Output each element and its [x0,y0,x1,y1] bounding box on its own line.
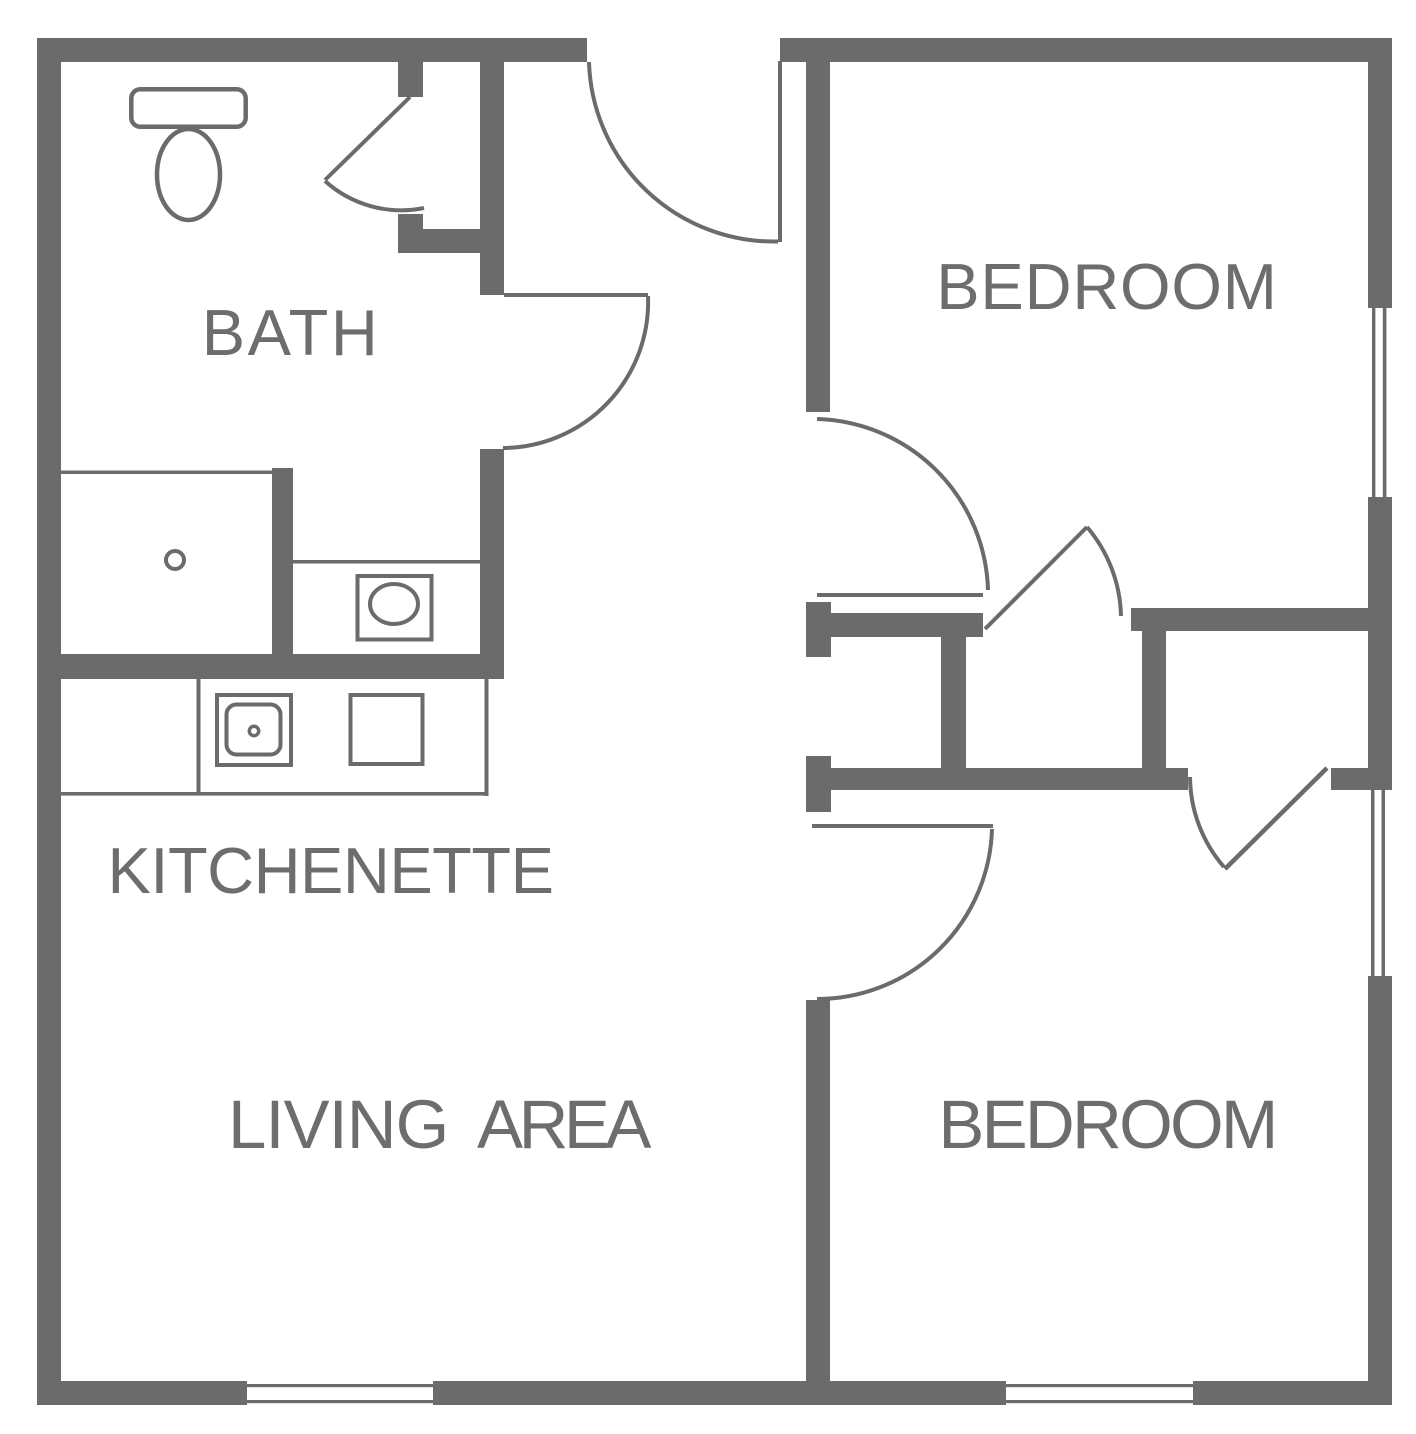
svg-text:KITCHENETTE: KITCHENETTE [108,834,554,907]
svg-text:LIVING: LIVING [228,1086,448,1163]
svg-text:AREA: AREA [477,1086,651,1163]
svg-text:BEDROOM: BEDROOM [938,1086,1275,1163]
svg-text:BATH: BATH [202,296,381,369]
svg-text:BEDROOM: BEDROOM [936,250,1277,323]
